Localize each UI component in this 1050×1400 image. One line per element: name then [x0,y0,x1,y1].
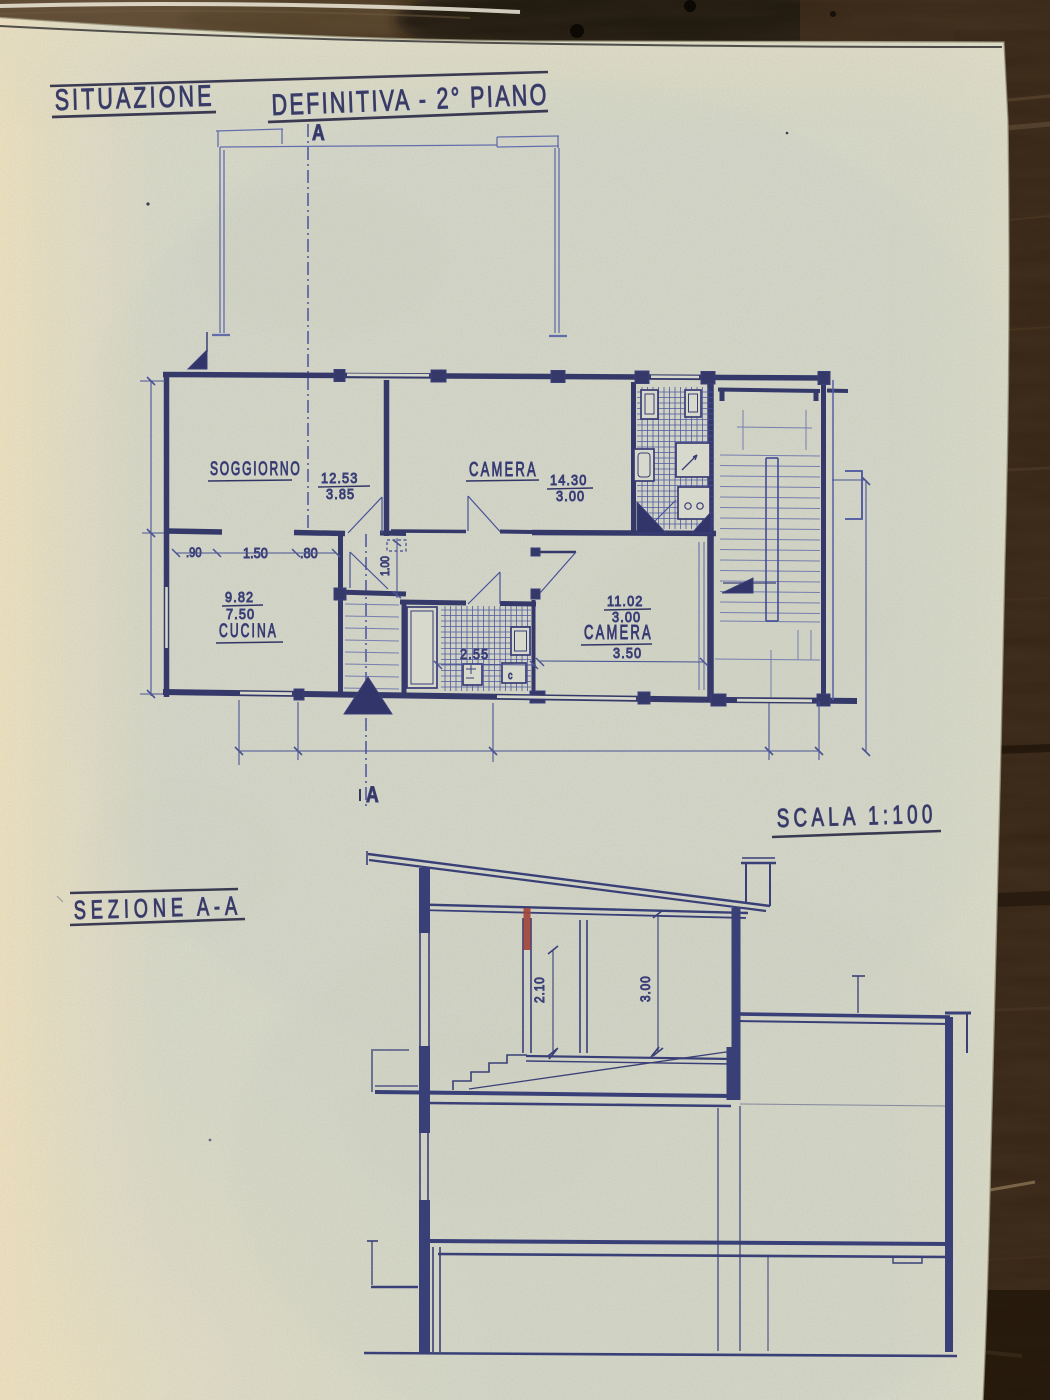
svg-text:12.53: 12.53 [321,469,358,486]
svg-text:9.82: 9.82 [225,588,254,605]
svg-text:A: A [366,783,379,807]
svg-text:SCALA 1:100: SCALA 1:100 [776,798,937,832]
svg-text:A: A [312,121,325,145]
svg-text:2.55: 2.55 [460,645,489,662]
svg-text:3.85: 3.85 [326,485,355,502]
svg-text:CUCINA: CUCINA [219,620,278,642]
svg-text:c: c [508,670,512,682]
svg-text:1.00: 1.00 [379,556,392,576]
svg-text:CAMERA: CAMERA [469,458,538,481]
svg-text:14.30: 14.30 [550,471,587,488]
svg-text:3.00: 3.00 [637,975,653,1002]
svg-text:SOGGIORNO: SOGGIORNO [210,458,302,480]
svg-text:3.00: 3.00 [612,608,641,625]
svg-text:SEZIONE A-A: SEZIONE A-A [73,891,242,925]
svg-text:3.00: 3.00 [556,487,585,504]
svg-text:2.10: 2.10 [531,976,547,1003]
svg-text:SITUAZIONE: SITUAZIONE [54,80,215,117]
svg-text:3.50: 3.50 [613,644,642,661]
svg-text:7.50: 7.50 [226,605,255,622]
svg-text:11.02: 11.02 [607,592,643,609]
